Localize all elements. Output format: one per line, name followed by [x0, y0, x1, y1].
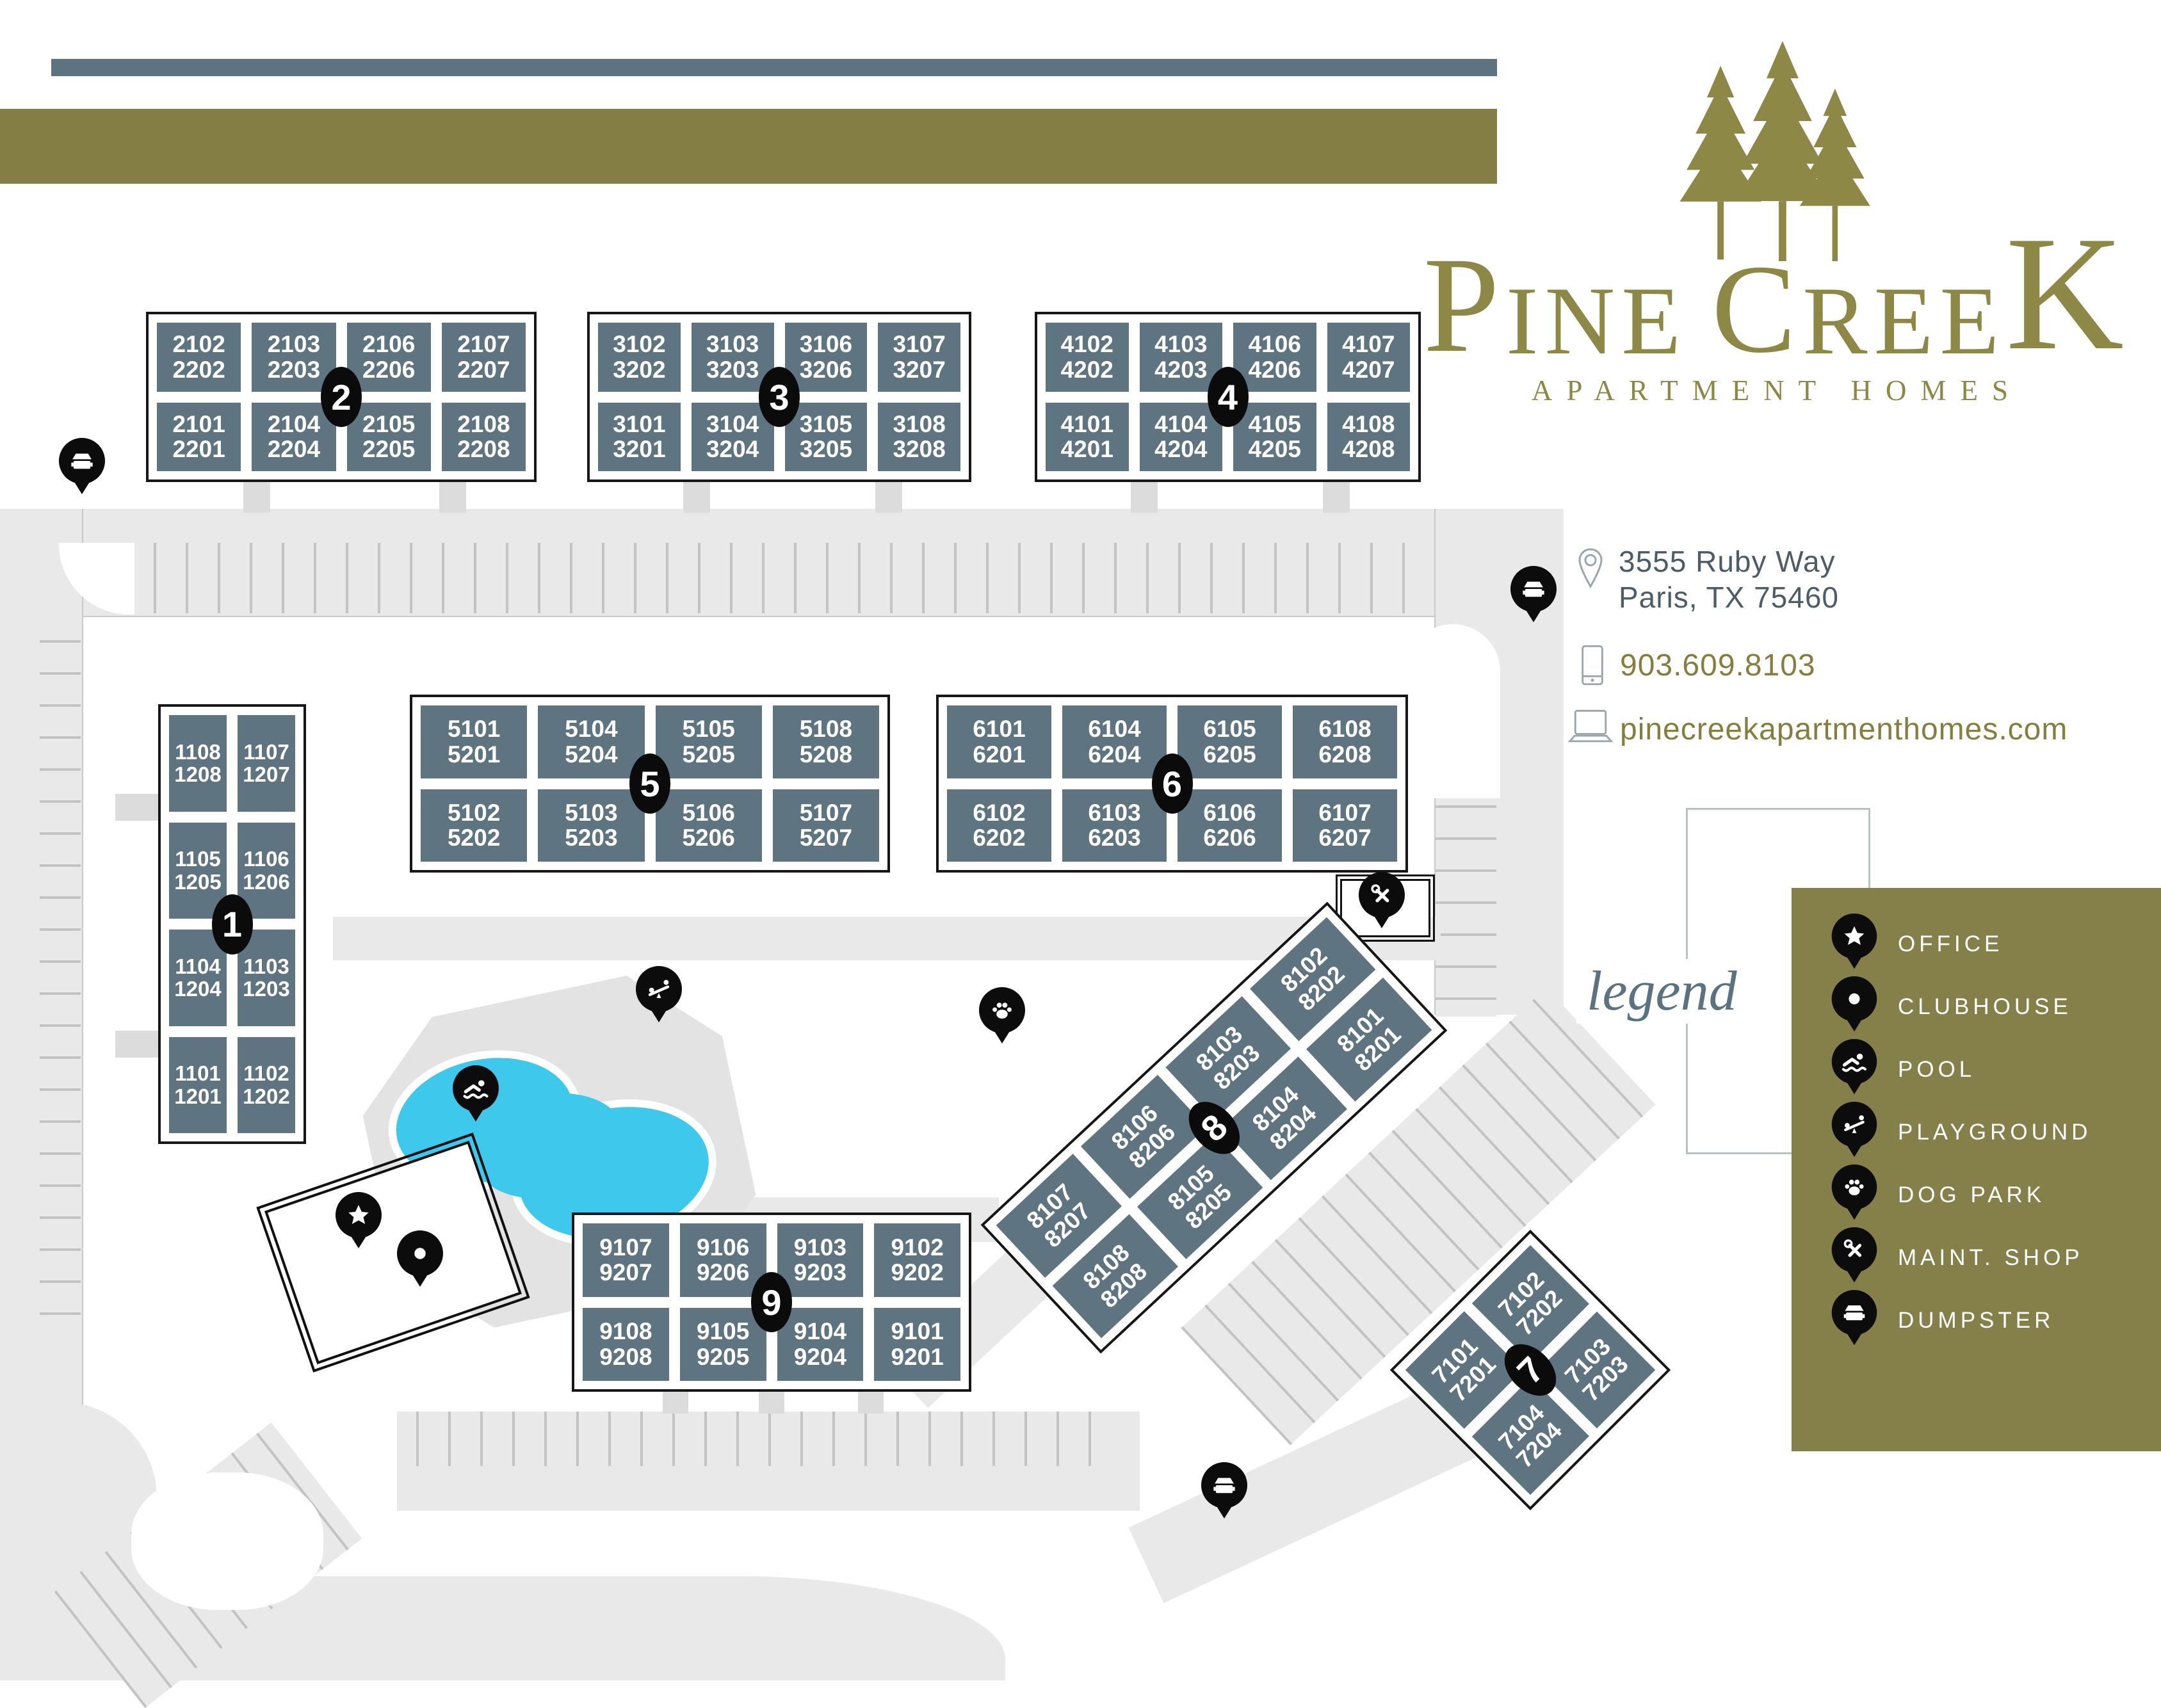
- unit-cell: 3105 3205: [785, 403, 868, 472]
- legend-item-label: OFFICE: [1898, 931, 2003, 957]
- swimmer-icon: [453, 1065, 499, 1111]
- location-pin-icon: [1574, 545, 1607, 592]
- unit-cell: 4102 4202: [1046, 323, 1129, 392]
- unit-cell: 6108 6208: [1293, 705, 1397, 778]
- unit-cell: 6106 6206: [1178, 789, 1282, 862]
- legend-title: legend: [1576, 959, 1747, 1024]
- unit-cell: 1102 1202: [238, 1037, 295, 1134]
- dog-park-pin: [979, 987, 1025, 1050]
- building-stem: [858, 1392, 884, 1414]
- star-icon: [336, 1192, 382, 1238]
- unit-cell: 6105 6205: [1178, 705, 1282, 778]
- logo-letter: K: [2005, 227, 2130, 361]
- building-stem: [683, 482, 710, 513]
- unit-cell: 6102 6202: [947, 789, 1051, 862]
- legend-item-label: DUMPSTER: [1898, 1308, 2054, 1333]
- logo-letter: P: [1423, 249, 1506, 361]
- legend-item-playground: PLAYGROUND: [1831, 1109, 2161, 1156]
- logo-letter: C: [1712, 257, 1802, 361]
- dumpster-icon: [1832, 1290, 1877, 1351]
- phone-icon: [1578, 643, 1607, 689]
- unit-cell: 2107 2207: [442, 323, 526, 392]
- legend-item-maint-shop: MAINT. SHOP: [1831, 1235, 2161, 1281]
- legend-item-dog-park: DOG PARK: [1831, 1172, 2161, 1218]
- building-4-badge: 4: [1208, 367, 1249, 427]
- unit-cell: 5102 5202: [421, 789, 527, 862]
- phone-number: 903.609.8103: [1620, 648, 1816, 683]
- unit-cell: 4106 4206: [1233, 323, 1316, 392]
- dumpster-pin: [1510, 566, 1557, 629]
- unit-cell: 6101 6201: [947, 705, 1051, 778]
- seesaw-icon: [636, 966, 682, 1012]
- office-pin: [336, 1192, 382, 1255]
- tools-icon: [1359, 872, 1405, 918]
- unit-cell: 5106 5206: [656, 789, 762, 862]
- unit-cell: 5101 5201: [421, 705, 527, 778]
- southwest-island: [131, 1472, 323, 1610]
- building-6: 6101 6201 6104 6204 6105 6205 6108 6208 …: [936, 695, 1408, 873]
- building-stem: [663, 1392, 688, 1414]
- legend-item-label: MAINT. SHOP: [1898, 1245, 2084, 1271]
- unit-cell: 1108 1208: [169, 715, 227, 812]
- unit-cell: 9103 9203: [777, 1223, 864, 1297]
- laptop-icon: [1566, 707, 1615, 746]
- unit-cell: 4107 4207: [1327, 323, 1411, 392]
- logo-letters: INE: [1506, 281, 1687, 361]
- building-stem: [243, 482, 270, 513]
- unit-cell: 5108 5208: [773, 705, 879, 778]
- legend-item-pool: POOL: [1831, 1047, 2161, 1093]
- unit-cell: 9108 9208: [583, 1308, 669, 1382]
- legend-item-label: CLUBHOUSE: [1898, 994, 2072, 1020]
- pool-pin: [453, 1065, 499, 1128]
- paw-icon: [1832, 1164, 1877, 1226]
- unit-cell: 5105 5205: [656, 705, 762, 778]
- unit-cell: 9104 9204: [777, 1308, 864, 1382]
- address-line-2: Paris, TX 75460: [1619, 580, 1839, 615]
- unit-cell: 2108 2208: [442, 403, 526, 472]
- dumpster-pin: [59, 438, 105, 501]
- seesaw-icon: [1832, 1102, 1877, 1163]
- unit-cell: 5104 5204: [538, 705, 644, 778]
- left-parking-ticks: [40, 640, 81, 1332]
- unit-cell: 5103 5203: [538, 789, 644, 862]
- building-1: 1108 1208 1107 1207 1105 1205 1106 1206 …: [158, 704, 306, 1144]
- unit-cell: 6104 6204: [1062, 705, 1167, 778]
- unit-cell: 1101 1201: [169, 1037, 227, 1134]
- building-3-badge: 3: [759, 367, 800, 427]
- dumpster-icon: [59, 438, 105, 484]
- unit-cell: 1107 1207: [238, 715, 295, 812]
- building-9: 9107 9207 9106 9206 9103 9203 9102 9202 …: [572, 1213, 971, 1392]
- paw-icon: [979, 987, 1025, 1033]
- unit-cell: 2102 2202: [157, 323, 241, 392]
- building-6-badge: 6: [1152, 753, 1193, 814]
- dot-icon: [397, 1230, 443, 1277]
- top-slate-bar: [51, 59, 1497, 76]
- building-stem: [1323, 482, 1350, 513]
- legend-item-dumpster: DUMPSTER: [1831, 1298, 2161, 1344]
- legend-item-label: DOG PARK: [1898, 1182, 2045, 1208]
- right-parking-ticks: [1436, 805, 1496, 1017]
- unit-cell: 3106 3206: [785, 323, 868, 392]
- parking-inlet: [1405, 624, 1500, 798]
- unit-cell: 4105 4205: [1233, 403, 1316, 472]
- legend-item-label: POOL: [1898, 1057, 1975, 1083]
- building-3: 3102 3202 3103 3203 3106 3206 3107 3207 …: [587, 312, 971, 482]
- unit-cell: 5107 5207: [773, 789, 879, 862]
- unit-cell: 2106 2206: [347, 323, 431, 392]
- unit-cell: 3102 3202: [598, 323, 681, 392]
- legend-item-office: OFFICE: [1831, 921, 2161, 967]
- top-olive-bar: [0, 109, 1497, 184]
- unit-cell: 2101 2201: [157, 403, 241, 472]
- unit-cell: 3108 3208: [878, 403, 960, 472]
- building-1-badge: 1: [212, 894, 253, 955]
- logo-wordmark: PINECREEK: [1453, 225, 2100, 361]
- logo-subtitle: APARTMENT HOMES: [1453, 374, 2100, 407]
- unit-cell: 3101 3201: [598, 403, 681, 472]
- logo-letters: REE: [1802, 281, 2005, 361]
- unit-cell: 6103 6203: [1062, 789, 1167, 862]
- dumpster-pin: [1201, 1462, 1247, 1525]
- unit-cell: 9101 9201: [874, 1308, 960, 1382]
- maintenance-pin: [1359, 872, 1405, 935]
- building-5: 5101 5201 5104 5204 5105 5205 5108 5208 …: [410, 695, 890, 873]
- building-stem: [875, 482, 902, 513]
- unit-cell: 6107 6207: [1293, 789, 1397, 862]
- building-stem: [1131, 482, 1158, 513]
- website-url: pinecreekapartmenthomes.com: [1620, 712, 2068, 747]
- building-2: 2102 2202 2103 2203 2106 2206 2107 2207 …: [146, 312, 537, 482]
- address-line-1: 3555 Ruby Way: [1619, 544, 1836, 579]
- building-stem: [115, 1031, 158, 1058]
- dumpster-icon: [1510, 566, 1557, 612]
- building-stem: [759, 1392, 784, 1414]
- building-stem: [439, 482, 466, 513]
- unit-cell: 2105 2205: [347, 403, 431, 472]
- unit-cell: 9105 9205: [680, 1308, 766, 1382]
- tools-icon: [1832, 1227, 1877, 1289]
- top-parking-ticks: [122, 543, 1434, 613]
- legend-panel: OFFICE CLUBHOUSE POOL PLAYGROUND DOG PAR…: [1792, 888, 2161, 1451]
- swimmer-icon: [1832, 1039, 1877, 1100]
- legend-item-clubhouse: CLUBHOUSE: [1831, 984, 2161, 1030]
- building-stem: [115, 794, 158, 821]
- dumpster-icon: [1201, 1462, 1247, 1508]
- unit-cell: 3107 3207: [878, 323, 960, 392]
- unit-cell: 4101 4201: [1046, 403, 1129, 472]
- unit-cell: 9106 9206: [680, 1223, 766, 1297]
- unit-cell: 9107 9207: [583, 1223, 669, 1297]
- unit-cell: 9102 9202: [874, 1223, 960, 1297]
- dot-icon: [1832, 976, 1877, 1038]
- legend-item-label: PLAYGROUND: [1898, 1120, 2091, 1145]
- playground-pin: [636, 966, 682, 1029]
- building-5-badge: 5: [629, 753, 670, 814]
- clubhouse-pin: [397, 1230, 443, 1293]
- south-parking-ticks: [416, 1412, 1121, 1466]
- building-9-badge: 9: [751, 1272, 792, 1332]
- star-icon: [1832, 914, 1877, 975]
- building-4: 4102 4202 4103 4203 4106 4206 4107 4207 …: [1035, 312, 1421, 482]
- building-2-badge: 2: [321, 367, 362, 427]
- unit-cell: 4108 4208: [1327, 403, 1411, 472]
